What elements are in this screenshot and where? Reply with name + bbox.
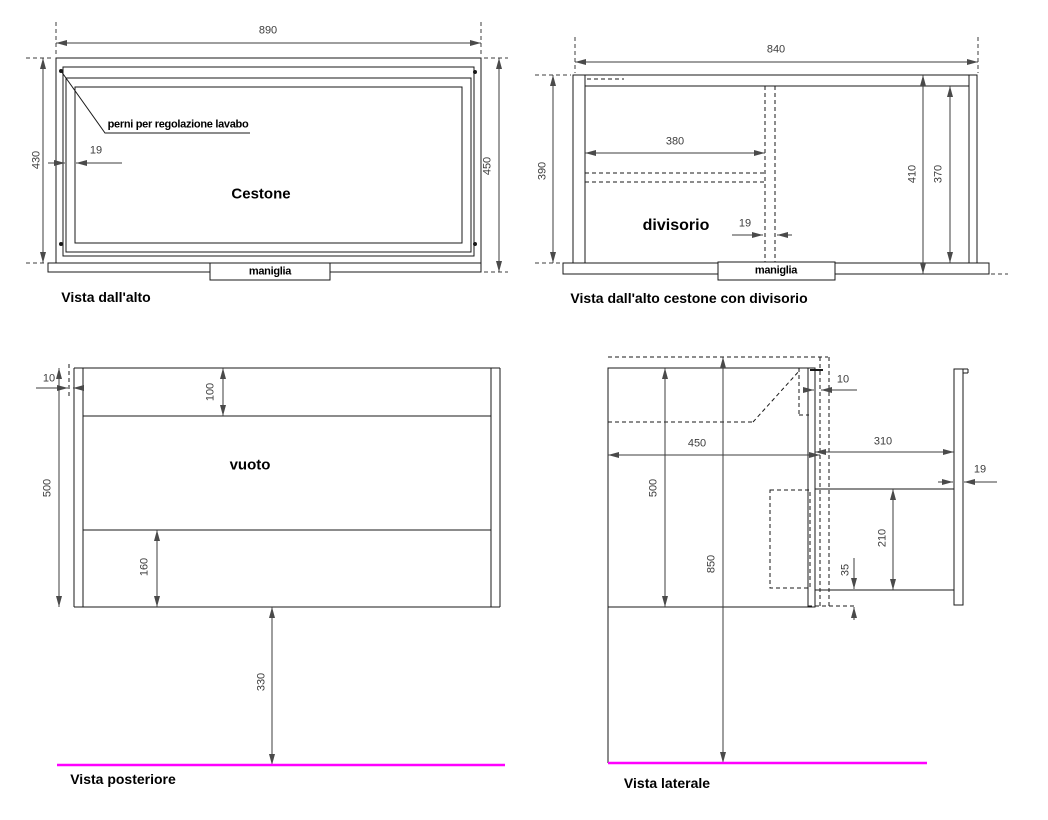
- dim-35: 35: [841, 564, 852, 576]
- dim-19: 19: [90, 146, 102, 157]
- divider-view-geometry: [535, 37, 1008, 280]
- dim-210: 210: [878, 529, 889, 547]
- pin-bottom-right: [473, 242, 477, 246]
- pin-top-right: [473, 70, 477, 74]
- dim-330: 330: [257, 673, 268, 691]
- dim-850: 850: [707, 555, 718, 573]
- dim-500-side: 500: [649, 479, 660, 497]
- dim-19-divider: 19: [739, 219, 751, 230]
- dim-370: 370: [934, 165, 945, 183]
- rear-view-geometry: [36, 364, 505, 765]
- label-maniglia: maniglia: [249, 267, 291, 278]
- dim-310: 310: [874, 437, 892, 448]
- dim-450-side: 450: [688, 439, 706, 450]
- technical-drawing-page: 890 430 450 19 perni per regolazione lav…: [0, 0, 1048, 820]
- pin-bottom-left: [59, 242, 63, 246]
- caption-divider-view: Vista dall'alto cestone con divisorio: [570, 291, 807, 305]
- dim-390: 390: [538, 162, 549, 180]
- wall-rail: [954, 369, 968, 605]
- dim-10-side: 10: [837, 375, 849, 386]
- caption-side-view: Vista laterale: [624, 776, 710, 790]
- dim-19-side: 19: [974, 465, 986, 476]
- dim-450: 450: [483, 157, 494, 175]
- dim-160: 160: [140, 558, 151, 576]
- label-maniglia-divider: maniglia: [755, 266, 797, 277]
- label-cestone: Cestone: [231, 187, 290, 202]
- drawer-dashed-box: [770, 490, 810, 588]
- divider-dashed: [585, 86, 775, 263]
- dim-10-rear: 10: [43, 374, 55, 385]
- left-wall: [573, 75, 585, 263]
- dim-380: 380: [666, 137, 684, 148]
- dim-890: 890: [259, 26, 277, 37]
- dim-100: 100: [206, 383, 217, 401]
- caption-top-view: Vista dall'alto: [61, 290, 150, 304]
- label-perni: perni per regolazione lavabo: [108, 120, 249, 131]
- label-vuoto: vuoto: [230, 458, 271, 473]
- dim-840: 840: [767, 45, 785, 56]
- dim-410: 410: [908, 165, 919, 183]
- right-wall: [969, 75, 977, 263]
- dim-500-rear: 500: [43, 479, 54, 497]
- caption-rear-view: Vista posteriore: [70, 772, 176, 786]
- label-divisorio: divisorio: [643, 218, 710, 234]
- dim-430: 430: [32, 151, 43, 169]
- side-view-geometry: [608, 357, 997, 763]
- sink-outline-dashed: [608, 357, 857, 606]
